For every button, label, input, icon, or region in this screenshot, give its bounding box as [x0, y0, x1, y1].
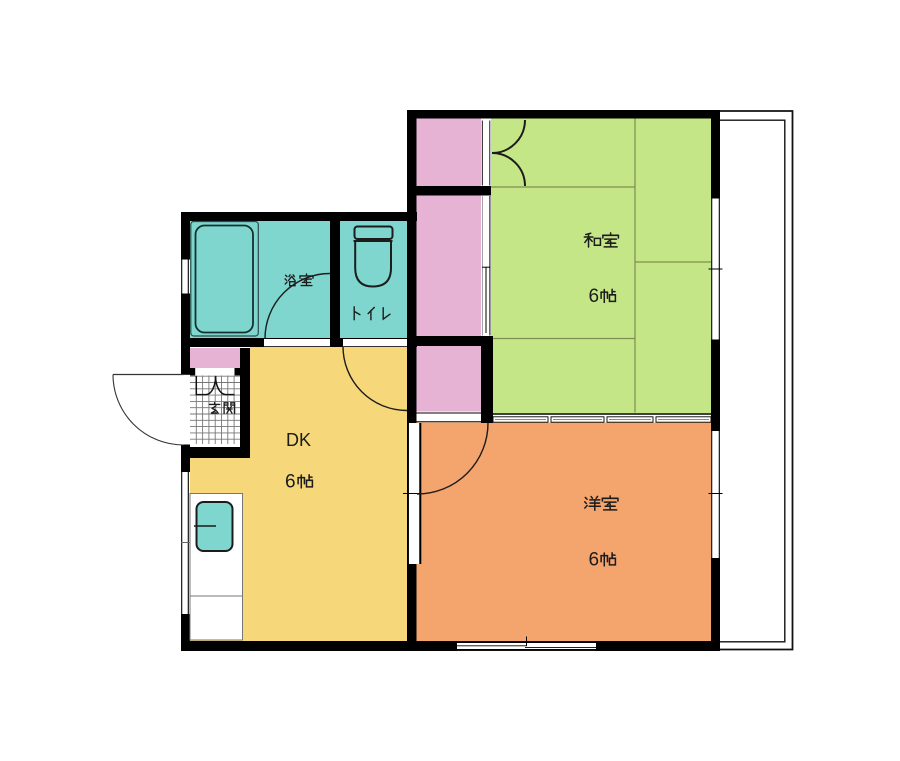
svg-text:6: 6 — [589, 550, 600, 571]
svg-text:6: 6 — [589, 286, 600, 307]
svg-text:6: 6 — [285, 472, 296, 493]
svg-text:DK: DK — [286, 430, 311, 450]
